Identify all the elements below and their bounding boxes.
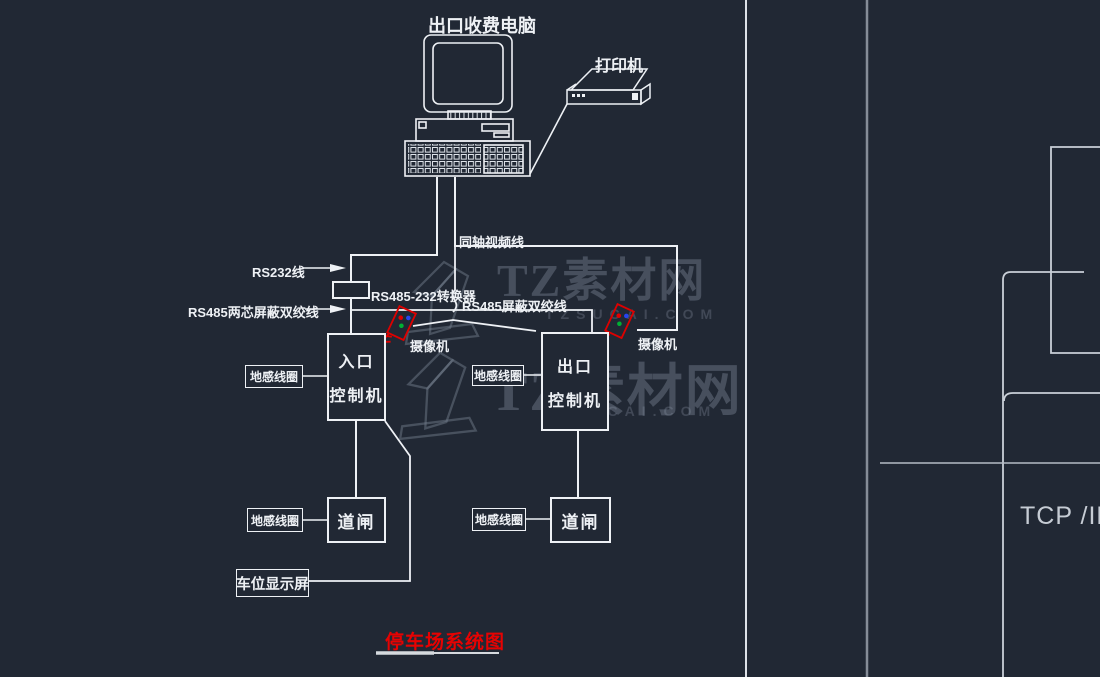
exit-camera-label: 摄像机 bbox=[638, 334, 677, 353]
rs485-two-core-label: RS485两芯屏蔽双绞线 bbox=[188, 302, 319, 321]
rs232-leader-arrow bbox=[303, 264, 346, 272]
watermark-logo-mid bbox=[400, 353, 476, 439]
tcpip-label: TCP /IP bbox=[1020, 502, 1100, 531]
cad-canvas: TZ素材网 TZSUCAI.COM TZ素材网 TZSUCAI.COM bbox=[0, 0, 1100, 677]
exit-loop-mid-box: 地感线圈 bbox=[472, 365, 524, 386]
parking-display-box: 车位显示屏 bbox=[236, 569, 309, 597]
exit-loop-bottom-box: 地感线圈 bbox=[472, 508, 526, 531]
entrance-controller-label-line1: 入口 bbox=[338, 348, 374, 372]
entrance-loop-bottom-box: 地感线圈 bbox=[247, 508, 303, 532]
exit-controller-box: 出口 控制机 bbox=[541, 332, 609, 431]
coax-label: 同轴视频线 bbox=[459, 232, 524, 251]
drawing-title: 停车场系统图 bbox=[385, 627, 505, 654]
computer-label: 出口收费电脑 bbox=[428, 12, 536, 38]
rs485-232-converter-box bbox=[332, 281, 370, 299]
rs232-label: RS232线 bbox=[252, 262, 305, 281]
printer-cable bbox=[530, 104, 567, 174]
entrance-camera-label: 摄像机 bbox=[410, 336, 449, 355]
exit-fee-computer-drawing bbox=[405, 35, 530, 176]
right-stub-lower bbox=[1004, 393, 1100, 401]
entrance-controller-box: 入口 控制机 bbox=[327, 333, 386, 421]
printer-label: 打印机 bbox=[595, 52, 643, 76]
right-stub-upper bbox=[1003, 272, 1084, 677]
entrance-loop-mid-box: 地感线圈 bbox=[245, 365, 303, 388]
entrance-controller-label-line2: 控制机 bbox=[329, 382, 383, 406]
converter-label: RS485-232转换器 bbox=[371, 286, 476, 305]
entrance-gate-box: 道闸 bbox=[327, 497, 386, 543]
exit-controller-label-line2: 控制机 bbox=[548, 387, 602, 411]
exit-gate-box: 道闸 bbox=[550, 497, 611, 543]
rs485-shielded-label: RS485屏蔽双绞线 bbox=[462, 296, 567, 315]
right-bracket-shape bbox=[1051, 147, 1100, 353]
exit-controller-label-line1: 出口 bbox=[557, 353, 593, 377]
